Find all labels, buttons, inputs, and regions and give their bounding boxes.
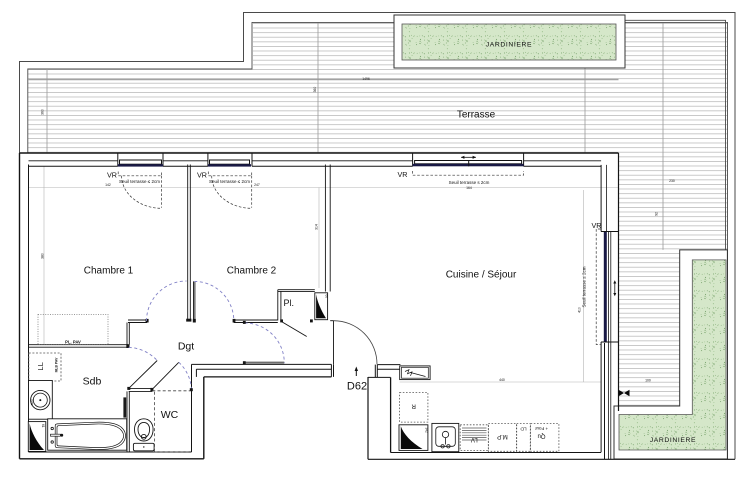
svg-text:Chambre 2: Chambre 2 [227,266,277,277]
svg-text:142: 142 [105,183,111,187]
svg-text:+ Four: + Four [534,426,548,431]
svg-text:247: 247 [254,183,260,187]
svg-text:Pl.: Pl. [284,298,295,308]
svg-text:M.P: M.P [497,433,508,439]
svg-text:1496: 1496 [362,77,370,81]
svg-text:LD: LD [520,426,527,432]
svg-text:Cuisine / Séjour: Cuisine / Séjour [446,270,517,281]
svg-text:JARDINIERE: JARDINIERE [650,437,696,444]
svg-text:Seuil terrasse ≤ 2cm: Seuil terrasse ≤ 2cm [119,179,160,184]
svg-text:61: 61 [41,424,45,428]
svg-text:VR: VR [197,171,207,180]
svg-text:PL. PAV: PL. PAV [65,339,81,344]
svg-text:92: 92 [655,212,659,216]
svg-text:342: 342 [424,428,428,434]
svg-text:R: R [411,403,416,409]
svg-text:Seuil terrasse s 2cm: Seuil terrasse s 2cm [449,180,490,185]
svg-text:Seuil terrasse ≤ 2cm: Seuil terrasse ≤ 2cm [209,179,250,184]
svg-text:100: 100 [645,379,651,383]
svg-text:380: 380 [41,253,45,259]
svg-text:LL: LL [36,362,45,370]
svg-text:Chambre 1: Chambre 1 [84,266,134,277]
svg-text:JARDINIERE: JARDINIERE [486,42,532,49]
svg-text:Sdb: Sdb [83,376,102,388]
svg-text:MAV: MAV [30,399,34,405]
svg-text:WC: WC [161,409,179,421]
svg-text:Qu: Qu [537,433,545,439]
svg-text:164: 164 [466,186,472,190]
svg-text:360: 360 [41,109,45,115]
svg-text:60: 60 [325,295,329,299]
svg-text:VR: VR [107,171,117,180]
svg-text:314: 314 [315,224,319,230]
svg-text:Dgt: Dgt [178,341,194,353]
svg-text:230: 230 [669,179,675,183]
svg-text:Terrasse: Terrasse [457,110,496,121]
svg-text:LV: LV [471,436,478,442]
svg-text:360: 360 [313,87,317,93]
svg-text:MLB PAV: MLB PAV [55,357,59,372]
svg-text:D62: D62 [347,381,367,393]
svg-text:440: 440 [499,378,505,382]
svg-text:410: 410 [578,307,582,313]
svg-text:VR: VR [398,170,408,179]
svg-text:Seuil terrasse ≤ 2cm: Seuil terrasse ≤ 2cm [582,266,587,307]
